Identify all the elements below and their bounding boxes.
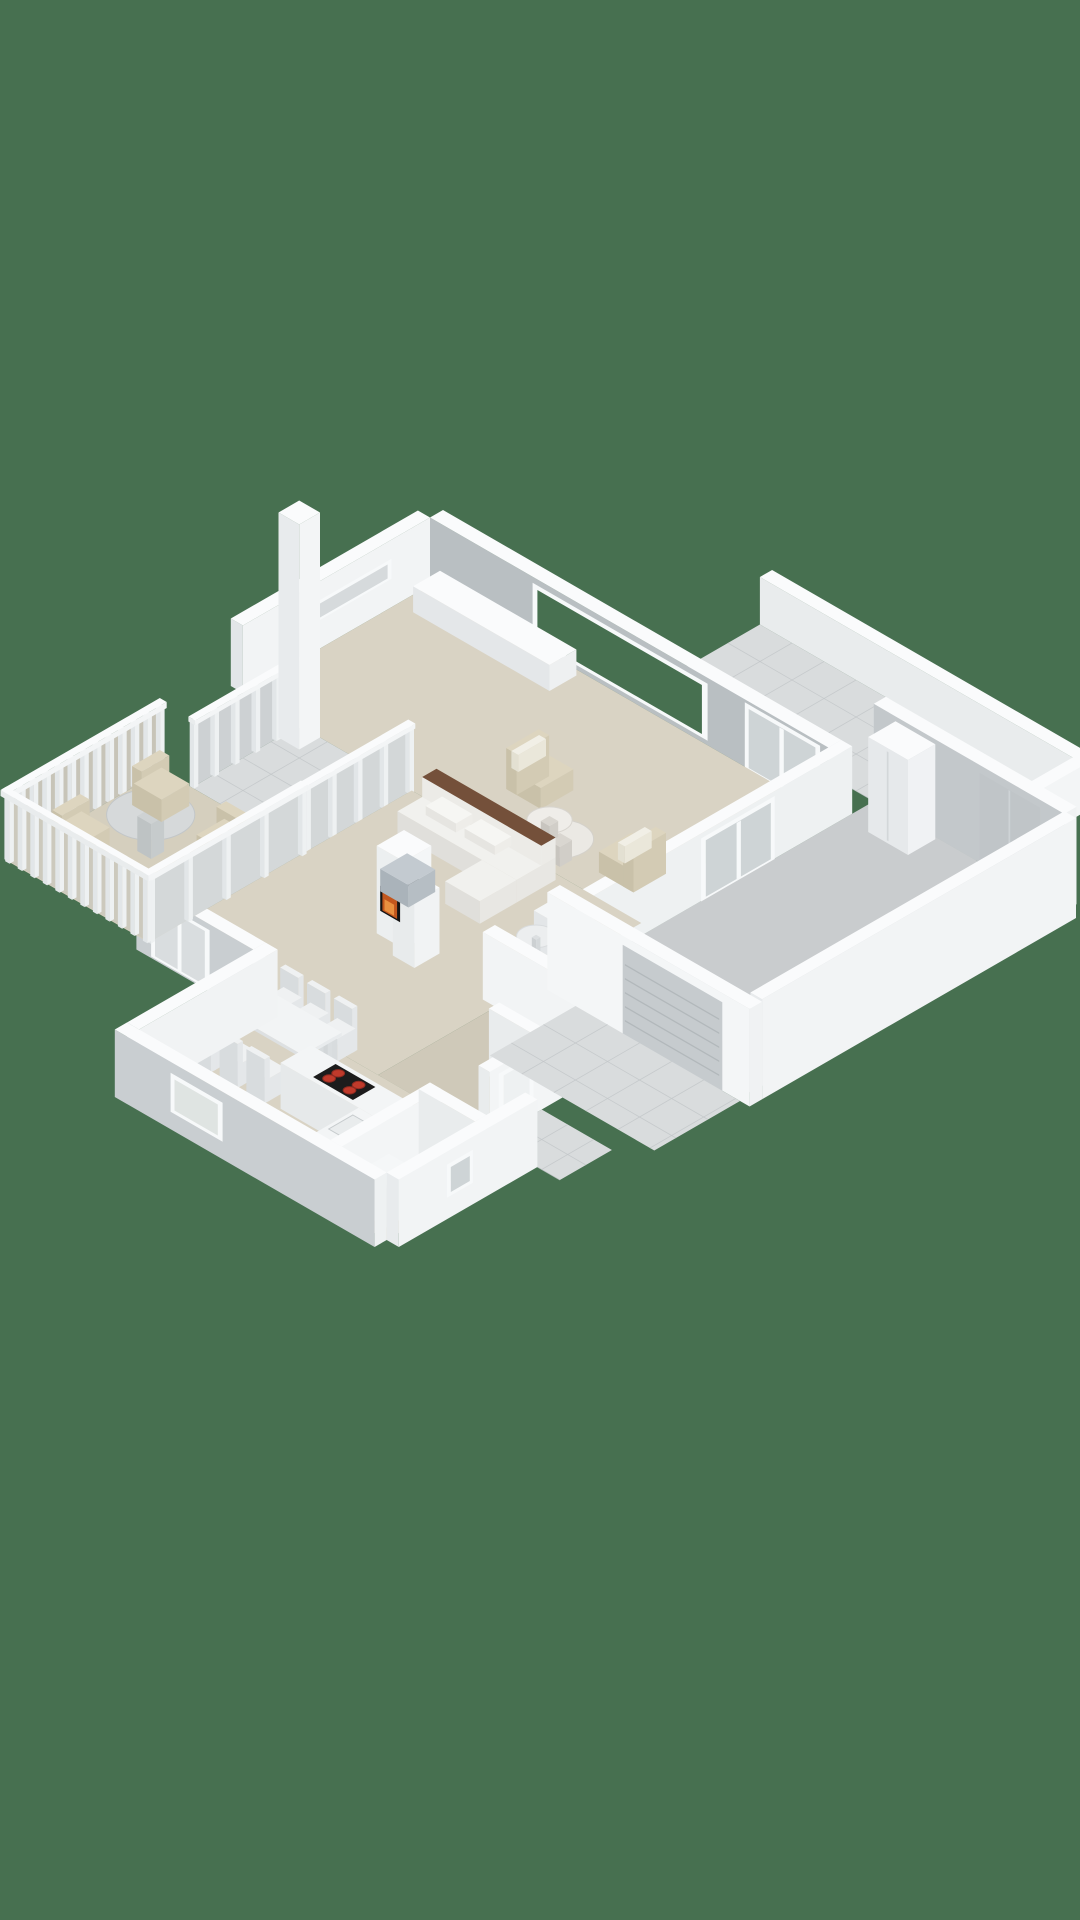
burner-4 [343, 1087, 356, 1094]
6-slat-se [256, 686, 260, 754]
garage-sw-wall-se [750, 1002, 763, 1107]
6-slat-sw [272, 674, 276, 742]
13-slat-sw [105, 736, 109, 804]
12-slat-sw [93, 847, 97, 915]
5-slat-sw [405, 727, 409, 795]
6-slat-se [215, 709, 219, 777]
5-slat-se [307, 786, 311, 854]
chimney-se [299, 513, 320, 750]
5-slat-se [302, 789, 306, 857]
13-slat-sw [93, 743, 97, 811]
12-slat-se [97, 847, 101, 915]
5-slat-sw [222, 833, 226, 901]
12-slat-se [147, 876, 151, 944]
12-slat-sw [118, 861, 122, 929]
hall-door-mullion [737, 821, 741, 880]
12-slat-se [47, 818, 51, 886]
5-slat-se [189, 854, 193, 922]
5-slat-se [384, 742, 388, 810]
isometric-scene [0, 0, 1080, 1920]
6-slat-se [194, 721, 198, 789]
6-slat-sw [210, 709, 214, 777]
13-slat-se [110, 736, 114, 804]
12-slat-se [60, 825, 64, 893]
12-slat-sw [105, 854, 109, 922]
12-slat-se [85, 840, 89, 908]
12-slat-sw [55, 825, 59, 893]
6-slat-sw [252, 686, 256, 754]
garage-wardrobe-se [908, 744, 935, 855]
5-slat-se [332, 771, 336, 839]
kitchen-se-wall-se [375, 1173, 387, 1248]
12-slat-se [110, 854, 114, 922]
12-slat-sw [43, 818, 47, 886]
dining-chair-se-2-back-se [238, 1041, 243, 1088]
12-slat-se [72, 832, 76, 900]
wardrobe-door-line [887, 751, 889, 841]
5-slat-sw [298, 789, 302, 857]
13-slat-se [97, 743, 101, 811]
5-slat-se [227, 833, 231, 901]
6-slat-se [235, 698, 239, 765]
6-slat-sw [231, 698, 235, 765]
12-slat-sw [130, 869, 134, 937]
floorplan-3d-render [0, 0, 1080, 1920]
12-slat-sw [68, 832, 72, 900]
13-slat-se [122, 729, 126, 797]
living-nw-wall-sw [231, 619, 243, 694]
5-slat-se [410, 727, 414, 795]
12-slat-se [35, 811, 39, 879]
5-slat-se [264, 811, 268, 879]
12-slat-sw [30, 811, 34, 879]
12-slat-sw [80, 840, 84, 908]
5-slat-sw [184, 854, 188, 922]
6-slat-sw [190, 721, 194, 789]
12-slat-sw [18, 804, 22, 872]
5-slat-sw [328, 771, 332, 839]
5-slat-se [358, 757, 362, 825]
5-slat-sw [380, 742, 384, 810]
burner-2 [323, 1075, 336, 1082]
12-slat-se [22, 804, 26, 872]
dining-chair-se-3-back-se [265, 1057, 270, 1104]
12-slat-se [10, 796, 14, 864]
chimney-sw [279, 513, 300, 750]
5-slat-sw [354, 757, 358, 825]
13-slat-sw [118, 729, 122, 797]
12-slat-sw [143, 876, 147, 944]
12-slat-sw [5, 796, 9, 864]
kitchen-east-wall-sw [387, 1173, 399, 1248]
12-slat-se [122, 861, 126, 929]
12-slat-se [135, 869, 139, 937]
5-slat-sw [260, 811, 264, 879]
